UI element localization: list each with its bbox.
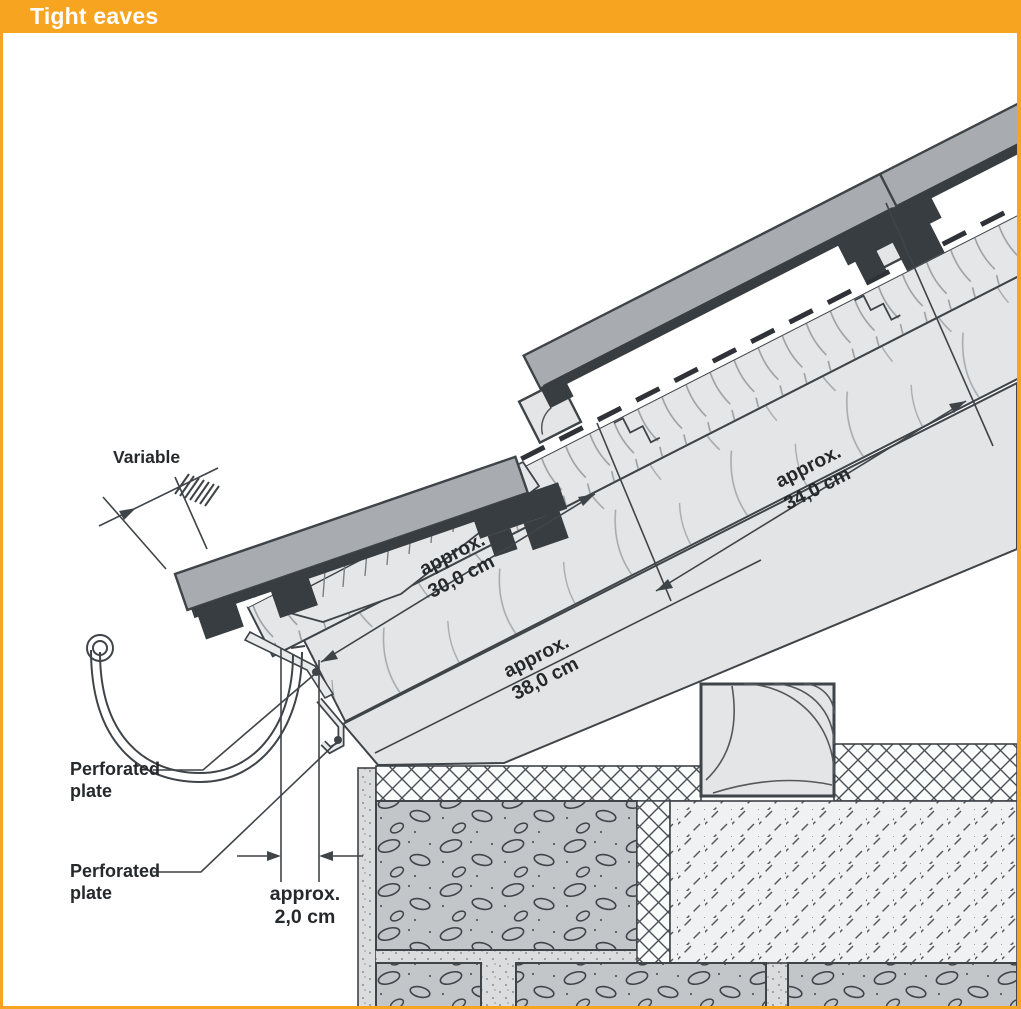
perforated-plate-label-bottom-line2: plate [70, 883, 112, 903]
concrete-ring-beam [670, 801, 1017, 963]
variable-dim-line [99, 468, 218, 526]
page: Tight eaves [0, 0, 1021, 1009]
perforated-plate-label-top-line2: plate [70, 781, 112, 801]
perforated-plate-label-top-line1: Perforated [70, 759, 160, 779]
page-title: Tight eaves [3, 0, 1017, 33]
variable-label: Variable [113, 447, 180, 467]
variable-ext-line-1 [103, 497, 166, 569]
tight-eaves-diagram: Variable approx. 30,0 cm approx. 34,0 cm… [3, 33, 1017, 1009]
exterior-plaster-layer [358, 768, 376, 1009]
dim-2-value: 2,0 cm [275, 906, 336, 928]
leader-dot [334, 736, 342, 744]
perforated-plate-label-bottom-line1: Perforated [70, 861, 160, 881]
wall-plate-timber [701, 684, 834, 796]
insulation-band-left [376, 766, 701, 801]
wall-assembly [358, 744, 1017, 1009]
insulation-band-vertical [637, 801, 670, 963]
arrowhead [319, 851, 333, 861]
arrowhead [267, 851, 281, 861]
masonry-block-bottom-mid [516, 963, 766, 1009]
masonry-block-bottom-right [788, 963, 1017, 1009]
dim-2-word: approx. [270, 883, 340, 905]
leader-perforated-top [153, 673, 316, 770]
insulation-band-right [834, 744, 1017, 801]
masonry-block-bottom-left [376, 963, 481, 1009]
masonry-block-large [376, 801, 637, 950]
leader-dot [312, 668, 320, 676]
